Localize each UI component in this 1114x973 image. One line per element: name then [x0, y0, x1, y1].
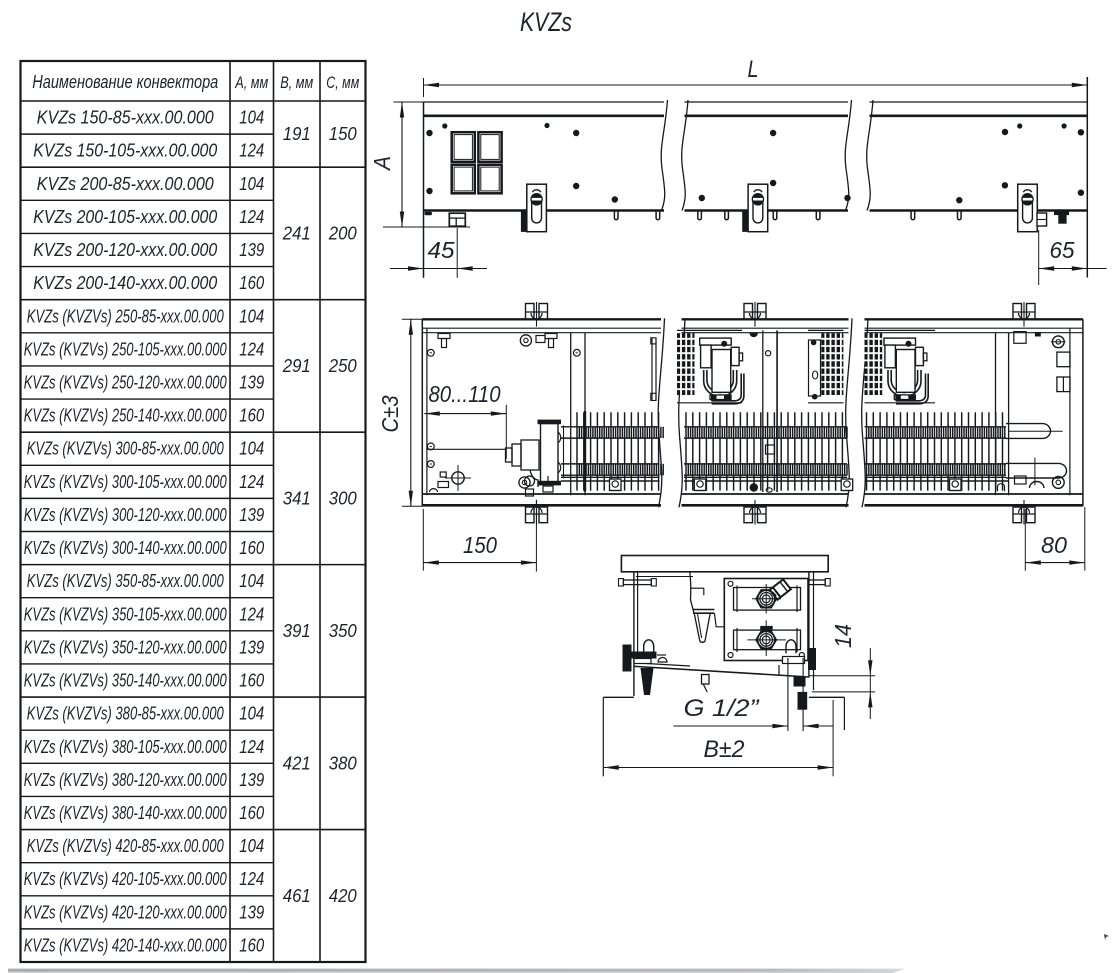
svg-text:KVZs (KVZVs) 420-105-xxx.00.00: KVZs (KVZVs) 420-105-xxx.00.000: [24, 869, 227, 889]
svg-text:200: 200: [328, 223, 357, 243]
svg-text:KVZs (KVZVs) 250-85-xxx.00.000: KVZs (KVZVs) 250-85-xxx.00.000: [27, 306, 224, 326]
svg-text:104: 104: [239, 571, 264, 591]
svg-text:KVZs 150-85-xxx.00.000: KVZs 150-85-xxx.00.000: [37, 108, 214, 128]
svg-text:A: A: [369, 156, 395, 172]
svg-text:KVZs (KVZVs) 250-140-xxx.00.00: KVZs (KVZVs) 250-140-xxx.00.000: [24, 406, 227, 426]
svg-text:124: 124: [239, 604, 264, 624]
svg-text:139: 139: [239, 505, 264, 525]
svg-text:KVZs 200-85-xxx.00.000: KVZs 200-85-xxx.00.000: [37, 174, 214, 194]
svg-text:65: 65: [1050, 237, 1075, 263]
svg-text:KVZs (KVZVs) 420-85-xxx.00.000: KVZs (KVZVs) 420-85-xxx.00.000: [27, 836, 224, 856]
svg-text:420: 420: [329, 886, 357, 906]
svg-text:KVZs (KVZVs) 350-85-xxx.00.000: KVZs (KVZVs) 350-85-xxx.00.000: [27, 571, 224, 591]
svg-text:KVZs (KVZVs) 300-105-xxx.00.00: KVZs (KVZVs) 300-105-xxx.00.000: [24, 472, 227, 492]
svg-text:KVZs 200-140-xxx.00.000: KVZs 200-140-xxx.00.000: [33, 273, 217, 293]
svg-text:KVZs 150-105-xxx.00.000: KVZs 150-105-xxx.00.000: [33, 141, 217, 161]
svg-text:А, мм: А, мм: [235, 73, 269, 92]
svg-text:150: 150: [463, 532, 497, 558]
svg-text:KVZs (KVZVs) 300-120-xxx.00.00: KVZs (KVZVs) 300-120-xxx.00.000: [24, 505, 227, 525]
svg-text:124: 124: [239, 472, 264, 492]
svg-text:KVZs (KVZVs) 420-140-xxx.00.00: KVZs (KVZVs) 420-140-xxx.00.000: [24, 935, 227, 955]
svg-text:14: 14: [830, 624, 856, 648]
svg-text:124: 124: [239, 141, 264, 161]
svg-text:KVZs (KVZVs) 380-140-xxx.00.00: KVZs (KVZVs) 380-140-xxx.00.000: [24, 803, 227, 823]
svg-text:124: 124: [239, 207, 264, 227]
svg-text:350: 350: [329, 621, 357, 641]
svg-text:KVZs 200-120-xxx.00.000: KVZs 200-120-xxx.00.000: [33, 240, 217, 260]
svg-text:80: 80: [1041, 532, 1067, 558]
svg-text:B±2: B±2: [704, 736, 745, 763]
svg-text:421: 421: [283, 753, 311, 773]
svg-text:KVZs (KVZVs) 350-120-xxx.00.00: KVZs (KVZVs) 350-120-xxx.00.000: [24, 637, 227, 657]
svg-text:KVZs (KVZVs) 300-85-xxx.00.000: KVZs (KVZVs) 300-85-xxx.00.000: [27, 439, 224, 459]
svg-text:160: 160: [239, 803, 264, 823]
svg-text:G 1/2”: G 1/2”: [684, 695, 760, 722]
svg-text:391: 391: [283, 621, 311, 641]
svg-text:124: 124: [239, 737, 264, 757]
svg-text:139: 139: [239, 770, 264, 790]
svg-text:191: 191: [283, 124, 311, 144]
svg-text:С±3: С±3: [377, 395, 403, 432]
svg-text:KVZs (KVZVs) 380-85-xxx.00.000: KVZs (KVZVs) 380-85-xxx.00.000: [27, 704, 224, 724]
svg-text:160: 160: [239, 273, 264, 293]
svg-text:KVZs (KVZVs) 250-120-xxx.00.00: KVZs (KVZVs) 250-120-xxx.00.000: [24, 372, 227, 392]
svg-text:В, мм: В, мм: [280, 73, 313, 92]
svg-text:291: 291: [282, 356, 311, 376]
svg-text:461: 461: [283, 886, 311, 906]
svg-text:124: 124: [239, 869, 264, 889]
svg-text:KVZs (KVZVs) 250-105-xxx.00.00: KVZs (KVZVs) 250-105-xxx.00.000: [24, 339, 227, 359]
svg-text:KVZs (KVZVs) 380-105-xxx.00.00: KVZs (KVZVs) 380-105-xxx.00.000: [24, 737, 227, 757]
svg-text:160: 160: [239, 935, 264, 955]
svg-text:104: 104: [239, 108, 264, 128]
svg-text:160: 160: [239, 406, 264, 426]
svg-text:KVZs: KVZs: [520, 7, 572, 37]
svg-text:80...110: 80...110: [429, 381, 501, 407]
svg-text:Наименование конвектора: Наименование конвектора: [32, 72, 218, 92]
svg-text:104: 104: [239, 704, 264, 724]
svg-text:124: 124: [239, 339, 264, 359]
svg-text:KVZs 200-105-xxx.00.000: KVZs 200-105-xxx.00.000: [33, 207, 217, 227]
svg-text:250: 250: [328, 356, 357, 376]
svg-text:160: 160: [239, 671, 264, 691]
svg-text:KVZs (KVZVs) 300-140-xxx.00.00: KVZs (KVZVs) 300-140-xxx.00.000: [24, 538, 227, 558]
svg-text:104: 104: [239, 306, 264, 326]
svg-text:104: 104: [239, 836, 264, 856]
svg-text:380: 380: [329, 753, 357, 773]
svg-text:241: 241: [282, 223, 311, 243]
svg-text:139: 139: [239, 902, 264, 922]
svg-text:139: 139: [239, 372, 264, 392]
svg-text:160: 160: [239, 538, 264, 558]
svg-text:300: 300: [329, 488, 357, 508]
svg-text:KVZs (KVZVs) 420-120-xxx.00.00: KVZs (KVZVs) 420-120-xxx.00.000: [24, 902, 227, 922]
svg-text:139: 139: [239, 240, 264, 260]
svg-text:104: 104: [239, 174, 264, 194]
svg-text:KVZs (KVZVs) 350-140-xxx.00.00: KVZs (KVZVs) 350-140-xxx.00.000: [24, 671, 227, 691]
svg-text:139: 139: [239, 637, 264, 657]
svg-text:150: 150: [329, 124, 357, 144]
svg-text:45: 45: [428, 237, 455, 263]
svg-text:KVZs (KVZVs) 350-105-xxx.00.00: KVZs (KVZVs) 350-105-xxx.00.000: [24, 604, 227, 624]
svg-text:341: 341: [283, 488, 311, 508]
svg-text:KVZs (KVZVs) 380-120-xxx.00.00: KVZs (KVZVs) 380-120-xxx.00.000: [24, 770, 227, 790]
svg-text:104: 104: [239, 439, 264, 459]
svg-text:С, мм: С, мм: [326, 73, 359, 92]
svg-text:L: L: [748, 56, 759, 83]
